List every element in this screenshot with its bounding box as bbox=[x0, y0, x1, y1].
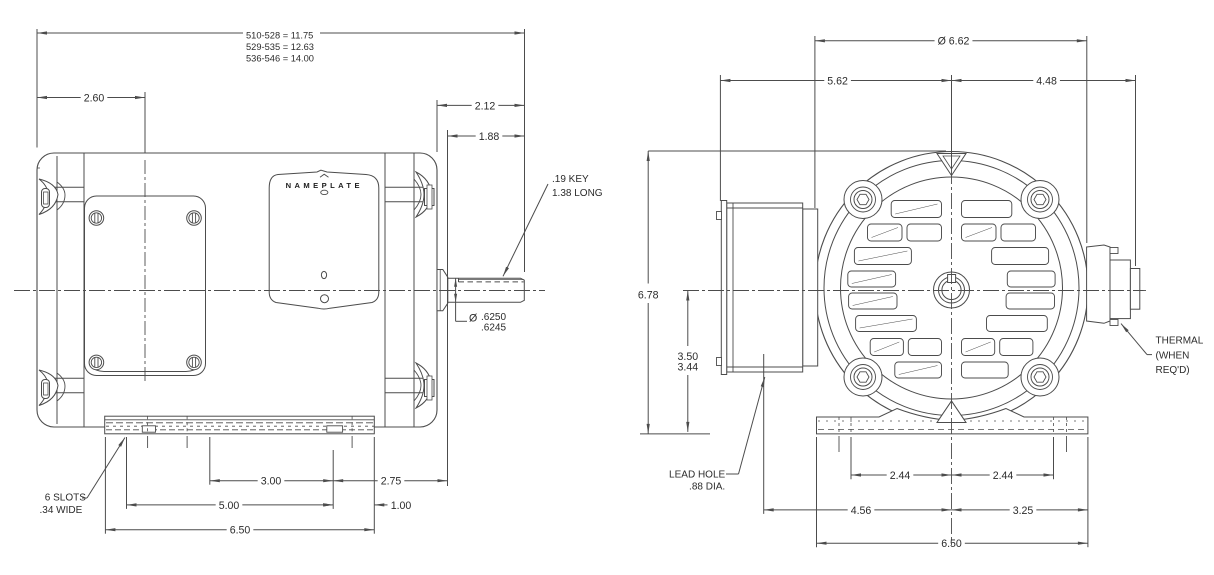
svg-text:3.44: 3.44 bbox=[677, 361, 698, 373]
svg-text:1.00: 1.00 bbox=[391, 500, 412, 512]
svg-text:2.44: 2.44 bbox=[890, 470, 911, 482]
svg-text:.6250: .6250 bbox=[481, 312, 506, 323]
svg-text:6 SLOTS: 6 SLOTS bbox=[45, 493, 86, 504]
svg-text:.88 DIA.: .88 DIA. bbox=[689, 482, 725, 493]
svg-text:Ø: Ø bbox=[469, 313, 477, 325]
svg-text:REQ'D): REQ'D) bbox=[1156, 365, 1190, 376]
svg-text:510-528 = 11.75: 510-528 = 11.75 bbox=[246, 30, 313, 40]
svg-text:.34 WIDE: .34 WIDE bbox=[40, 505, 83, 516]
svg-text:6.50: 6.50 bbox=[941, 538, 962, 550]
svg-text:529-535 = 12.63: 529-535 = 12.63 bbox=[246, 42, 314, 52]
svg-text:THERMAL: THERMAL bbox=[1156, 336, 1204, 347]
svg-text:Ø 6.62: Ø 6.62 bbox=[938, 36, 970, 48]
svg-text:NAMEPLATE: NAMEPLATE bbox=[286, 181, 363, 190]
svg-text:.19 KEY: .19 KEY bbox=[552, 174, 589, 185]
svg-text:2.75: 2.75 bbox=[381, 476, 402, 488]
svg-text:2.12: 2.12 bbox=[475, 100, 496, 112]
svg-text:3.25: 3.25 bbox=[1013, 505, 1034, 517]
svg-text:(WHEN: (WHEN bbox=[1156, 351, 1190, 362]
svg-text:LEAD HOLE: LEAD HOLE bbox=[669, 470, 725, 481]
svg-text:2.44: 2.44 bbox=[993, 470, 1014, 482]
svg-text:4.56: 4.56 bbox=[851, 505, 872, 517]
svg-text:1.38 LONG: 1.38 LONG bbox=[552, 188, 603, 199]
svg-text:1.88: 1.88 bbox=[479, 131, 500, 143]
svg-text:6.78: 6.78 bbox=[638, 290, 659, 302]
svg-text:4.48: 4.48 bbox=[1036, 75, 1057, 87]
svg-text:536-546 = 14.00: 536-546 = 14.00 bbox=[246, 53, 314, 63]
svg-text:6.50: 6.50 bbox=[230, 525, 251, 537]
svg-text:3.00: 3.00 bbox=[261, 476, 282, 488]
svg-text:2.60: 2.60 bbox=[84, 92, 105, 104]
svg-text:.6245: .6245 bbox=[481, 323, 506, 334]
svg-text:5.00: 5.00 bbox=[219, 500, 240, 512]
svg-text:5.62: 5.62 bbox=[827, 75, 848, 87]
